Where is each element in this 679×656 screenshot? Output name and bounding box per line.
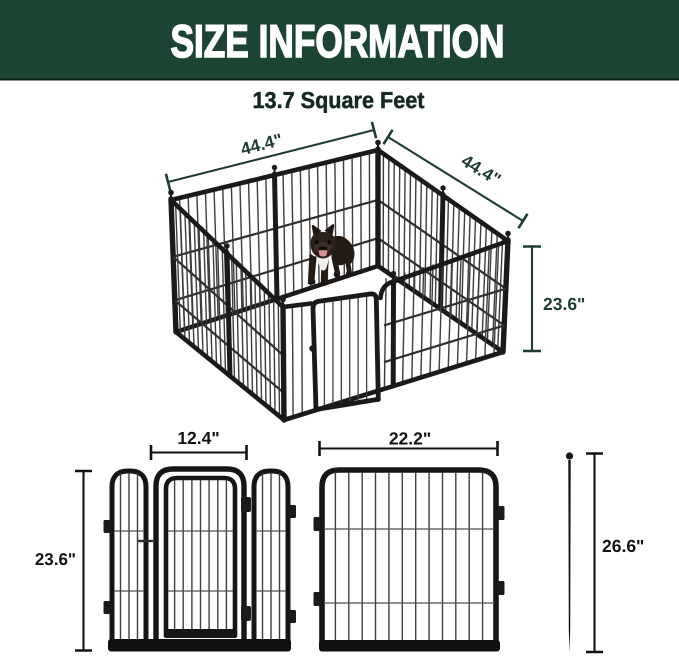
svg-text:26.6": 26.6" [602,536,644,556]
svg-text:22.2": 22.2" [389,429,431,449]
svg-text:SIZE INFORMATION: SIZE INFORMATION [171,15,505,67]
svg-text:13.7 Square Feet: 13.7 Square Feet [253,87,425,113]
svg-text:23.6": 23.6" [35,550,76,569]
svg-text:12.4": 12.4" [177,428,219,448]
svg-text:23.6": 23.6" [543,294,585,314]
